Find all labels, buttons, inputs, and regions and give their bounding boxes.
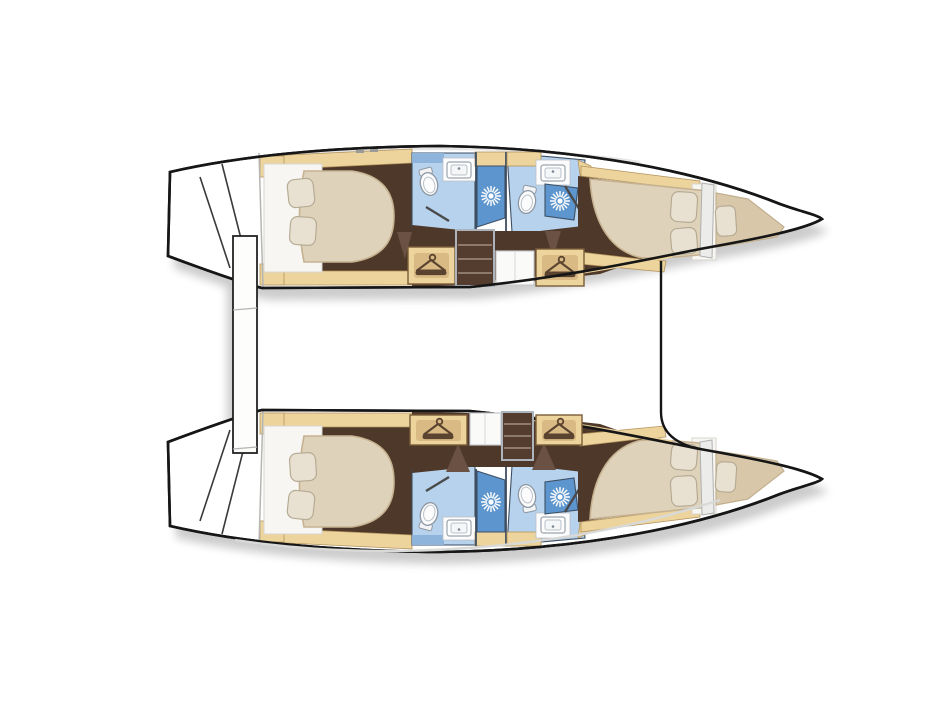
- bridgedeck-edge: [661, 261, 700, 449]
- upper-hull: [168, 146, 822, 288]
- companionway-steps: [456, 230, 494, 286]
- wardrobe: [408, 247, 455, 284]
- wardrobe: [536, 415, 582, 445]
- companionway-steps: [502, 412, 533, 460]
- catamaran-floor-plan: [0, 0, 947, 710]
- center-gangway-plank: [233, 236, 257, 453]
- wardrobe: [410, 415, 467, 445]
- storage-cabinet: [470, 413, 501, 445]
- wardrobe: [536, 249, 584, 286]
- floor-plan-canvas: [0, 0, 947, 710]
